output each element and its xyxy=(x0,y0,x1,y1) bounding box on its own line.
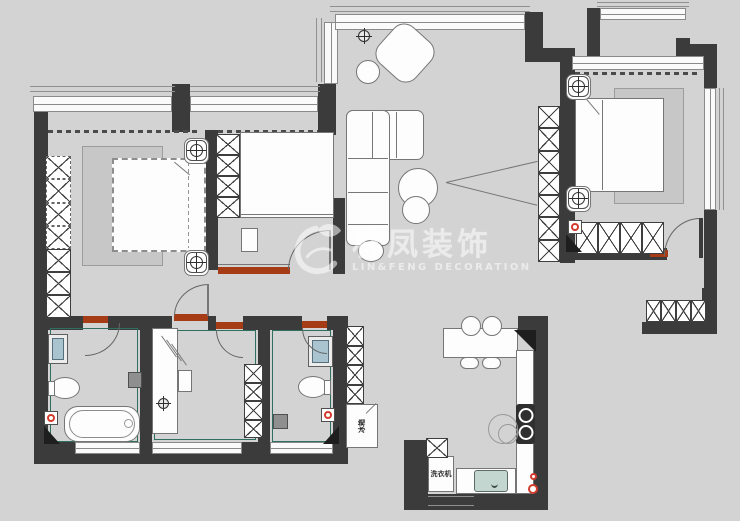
bay-lines-master-right xyxy=(719,88,724,210)
wall-master-bay-left xyxy=(587,8,600,58)
switch-bath1 xyxy=(128,372,142,388)
sofa-seam-2 xyxy=(348,192,388,193)
laundry-shelf xyxy=(178,370,192,392)
bed-master xyxy=(575,98,664,192)
gas-hob xyxy=(516,404,535,444)
wall-corridor-c xyxy=(208,316,216,330)
laundry-floor-drain xyxy=(156,396,171,411)
cabinet-x-box xyxy=(46,203,71,226)
threshold-bath1 xyxy=(83,316,108,323)
tv-cabinet-column xyxy=(538,106,560,262)
outlet-bath1 xyxy=(44,411,58,425)
cabinet-x-box xyxy=(46,249,71,272)
wardrobe-master xyxy=(576,222,664,254)
bathtub-drain xyxy=(124,419,133,428)
cabinet-x-box xyxy=(346,326,364,346)
cabinet-x-box xyxy=(538,240,560,262)
cabinet-x-box xyxy=(216,197,240,218)
bedside-lamp-m-top xyxy=(568,76,589,97)
bedside-lamp-b2-bottom xyxy=(186,252,207,273)
laundry-cabinet xyxy=(152,328,178,434)
cabinet-x-box xyxy=(642,222,664,254)
kitchen-column xyxy=(346,326,364,404)
watermark-subtitle: LIN&FENG DECORATION xyxy=(352,262,532,273)
window-pane-line xyxy=(336,22,524,23)
tv-sightline-upper xyxy=(446,161,538,183)
door-leaf-master xyxy=(699,218,703,258)
cabinet-x-box xyxy=(46,272,71,295)
window-laundry-bottom xyxy=(152,442,242,454)
wall-master-right-top xyxy=(704,56,717,88)
curtain-bedroom xyxy=(48,130,198,133)
sofa-seam-1 xyxy=(348,158,388,159)
cabinet-x-box xyxy=(216,134,240,155)
lounge-side-table xyxy=(356,60,380,84)
wardrobe-study xyxy=(216,134,240,218)
wall-corridor-d xyxy=(243,316,302,330)
wall-study-living-stub xyxy=(333,198,345,274)
bed-bedroom2 xyxy=(112,158,206,252)
window-master-right xyxy=(704,88,716,210)
cabinet-x-box xyxy=(346,365,364,385)
dining-table xyxy=(443,328,518,358)
window-pane-line xyxy=(153,448,241,449)
steam-swirl-inner xyxy=(498,424,518,444)
coffee-table-small xyxy=(402,196,430,224)
wall-corridor-e xyxy=(327,316,348,330)
sofa-body-section xyxy=(346,110,390,246)
window-pane-line xyxy=(601,14,685,15)
wall-entry-h xyxy=(642,322,717,334)
dining-chair-bottom-1 xyxy=(460,357,479,369)
cabinet-x-box xyxy=(426,438,448,458)
bay-lines-living-top xyxy=(330,6,530,12)
dining-chair-bottom-2 xyxy=(482,357,501,369)
window-pane-line xyxy=(573,63,703,64)
washbasin-bath1 xyxy=(48,334,68,364)
wall-living-west-stub xyxy=(318,84,336,135)
bedside-lamp-b2-top xyxy=(186,140,207,161)
threshold-laundry xyxy=(216,322,243,329)
cabinet-x-box xyxy=(244,420,263,439)
wall-master-right-bottom xyxy=(704,210,717,294)
tatami-study xyxy=(240,132,334,218)
washing-machine-label: 洗衣机 xyxy=(428,468,454,480)
bed-master-pillow-line xyxy=(602,100,603,190)
cabinet-x-box xyxy=(346,385,364,405)
door-leaf-study xyxy=(329,230,331,270)
outlet-kitchen-large xyxy=(528,484,538,494)
cabinet-x-box xyxy=(216,155,240,176)
cabinet-x-box xyxy=(661,300,676,322)
bay-lines-bedroom xyxy=(30,86,175,92)
cabinet-x-box xyxy=(538,106,560,128)
sofa-seam-3 xyxy=(348,224,388,225)
door-leaf-bedroom2 xyxy=(207,284,209,316)
cabinet-x-box xyxy=(46,179,71,202)
outlet-bath2 xyxy=(321,408,335,422)
curtain-master xyxy=(575,72,700,75)
cabinet-x-box xyxy=(538,217,560,239)
bay-lines-living-west xyxy=(316,18,322,82)
cabinet-x-box xyxy=(244,383,263,402)
window-pane-line xyxy=(191,104,317,105)
cabinet-x-box xyxy=(244,401,263,420)
outlet-master xyxy=(568,220,582,234)
wall-kitchen-right xyxy=(534,332,548,510)
cabinet-x-box xyxy=(538,195,560,217)
bay-lines-master xyxy=(597,2,689,7)
cabinet-x-box xyxy=(244,364,263,383)
window-pane-line xyxy=(331,23,332,83)
switch-bath2 xyxy=(273,414,288,429)
lounge-ceiling-lamp xyxy=(356,28,372,44)
shoe-cabinet-entry xyxy=(646,300,706,322)
bedside-lamp-m-bottom xyxy=(568,188,589,209)
wall-kitchen-left-lower xyxy=(404,440,428,510)
cabinet-x-box xyxy=(691,300,706,322)
cabinet-x-box xyxy=(538,128,560,150)
wall-bath2-kitchen xyxy=(333,316,346,444)
window-study-top xyxy=(190,96,318,112)
toilet-tank-bath2 xyxy=(324,380,331,395)
toilet-tank-bath1 xyxy=(48,381,55,396)
cabinet-x-box xyxy=(676,300,691,322)
floor-plan-canvas: 林凤装饰 LIN&FENG DECORATION 洗衣机冰箱 xyxy=(0,0,740,521)
cabinet-x-box xyxy=(598,222,620,254)
study-opening-line xyxy=(218,264,290,265)
dining-chair-top-1 xyxy=(461,316,481,336)
tv-sightline-lower xyxy=(446,182,537,206)
sofa-ottoman xyxy=(358,240,384,262)
kitchen-step-lines xyxy=(428,496,474,506)
wall-kitchen-top xyxy=(518,316,548,332)
kitchen-sink xyxy=(474,470,508,492)
tatami-edge-line xyxy=(240,214,334,215)
cabinet-x-box xyxy=(538,173,560,195)
cabinet-x-box xyxy=(46,295,71,318)
sofa-seam-4 xyxy=(372,112,373,158)
door-arc-study xyxy=(288,230,330,270)
cabinet-x-box xyxy=(46,226,71,249)
cabinet-x-box xyxy=(620,222,642,254)
washer-overhead-box xyxy=(426,438,448,458)
window-master-bay xyxy=(600,8,686,20)
cabinet-x-box xyxy=(46,156,71,179)
threshold-bath2 xyxy=(302,321,327,328)
window-master-top xyxy=(572,56,704,70)
outlet-kitchen-small xyxy=(530,473,537,480)
cabinet-x-box xyxy=(216,176,240,197)
cabinet-x-box xyxy=(346,346,364,366)
dining-chair-top-2 xyxy=(482,316,502,336)
laundry-column xyxy=(244,364,263,438)
window-pane-line xyxy=(710,89,711,209)
door-arc-bedroom2 xyxy=(174,284,209,316)
window-pane-line xyxy=(271,448,332,449)
wardrobe-bedroom2-lower xyxy=(46,249,71,318)
study-side-table xyxy=(241,228,258,252)
window-bath1-bottom xyxy=(75,442,140,454)
window-pane-line xyxy=(34,104,171,105)
threshold-study xyxy=(218,267,290,274)
wall-living-top-corner-v xyxy=(525,12,543,62)
fridge-label: 冰箱 xyxy=(356,410,368,442)
bay-lines-study xyxy=(190,86,320,92)
wardrobe-bedroom2-upper xyxy=(46,156,71,249)
window-bedroom-top xyxy=(33,96,172,112)
sofa-seam-5 xyxy=(396,112,397,158)
window-living-west xyxy=(324,22,338,84)
cabinet-x-box xyxy=(646,300,661,322)
window-pane-line xyxy=(76,448,139,449)
cabinet-x-box xyxy=(538,151,560,173)
door-arc-master xyxy=(664,218,700,256)
